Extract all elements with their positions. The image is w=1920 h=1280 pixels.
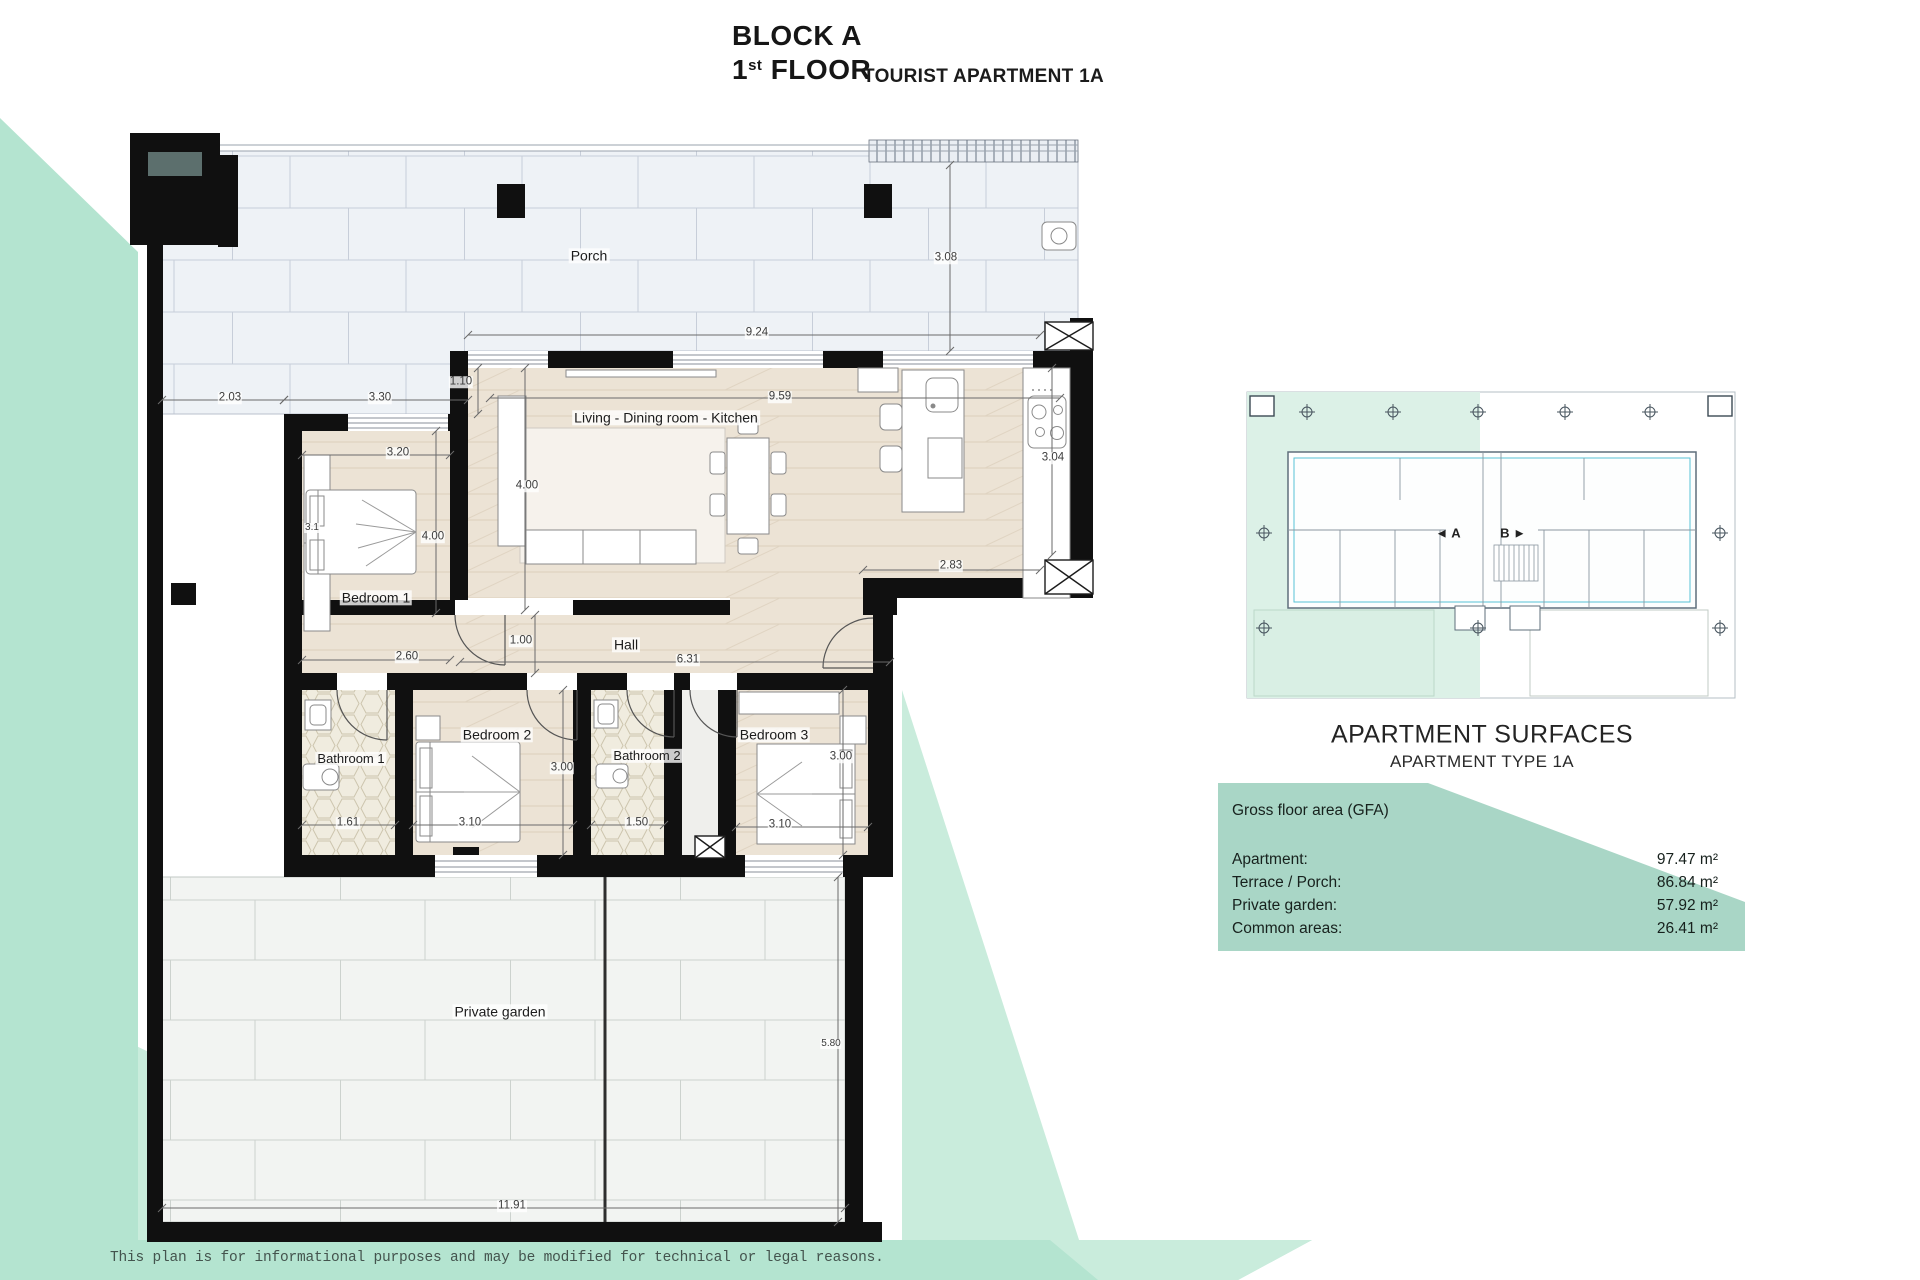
dim-label: 9.59	[768, 391, 792, 403]
dim-label: 3.00	[829, 751, 853, 763]
title-floor: 1st FLOOR	[732, 54, 871, 86]
key-plan-unit-b-label: B ►	[1500, 526, 1526, 541]
garden-right-wall	[845, 877, 863, 1222]
left-plot-wall	[147, 235, 163, 1242]
dim-label: 3.1	[304, 523, 320, 533]
bottom-plot-wall	[147, 1222, 882, 1242]
pillar	[171, 583, 196, 605]
floor-number: 1	[732, 54, 748, 85]
floor-ordinal: st	[748, 57, 762, 74]
surfaces-heading: APARTMENT SURFACES	[1331, 721, 1633, 750]
room-label-garden: Private garden	[452, 1004, 547, 1019]
porch-column	[864, 184, 892, 218]
bed-double	[306, 490, 416, 574]
chair	[771, 494, 786, 516]
toilet	[596, 764, 628, 788]
key-plan-unit-a-label: ◄ A	[1435, 526, 1460, 541]
room-label-bathroom1: Bathroom 1	[315, 752, 386, 766]
sofa	[498, 396, 526, 546]
window-bedroom1	[348, 414, 448, 431]
shaft-box	[1045, 560, 1093, 594]
dim-label: 2.03	[218, 392, 242, 404]
dim-label: 3.20	[386, 447, 410, 459]
shaft-box	[695, 836, 725, 858]
dim-label: 4.00	[421, 531, 445, 543]
nightstand	[416, 716, 440, 740]
closet	[739, 692, 839, 714]
window-bedroom2	[435, 855, 537, 877]
nightstand	[840, 716, 866, 744]
title-apartment: TOURIST APARTMENT 1A	[863, 66, 1104, 88]
dim-label: 5.80	[820, 1039, 841, 1049]
floor-word: FLOOR	[762, 54, 871, 85]
dim-label: 1.00	[509, 635, 533, 647]
garden-floor	[162, 877, 845, 1222]
surface-row-value: 26.41 m²	[1528, 920, 1718, 938]
key-plan-stairs	[1494, 545, 1538, 581]
dim-label: 2.83	[939, 560, 963, 572]
dim-label: 1.10	[449, 376, 473, 388]
surface-row-label: Common areas:	[1232, 920, 1342, 938]
surface-row-value: 86.84 m²	[1528, 874, 1718, 892]
key-plan	[1247, 392, 1735, 698]
key-plan-corner	[1708, 396, 1732, 416]
entry-block-wall	[130, 133, 220, 245]
dining-table	[727, 438, 769, 534]
stool	[880, 446, 902, 472]
toilet	[303, 764, 339, 790]
room-label-bathroom2: Bathroom 2	[611, 749, 682, 763]
dim-label: 2.60	[395, 651, 419, 663]
chair	[710, 452, 725, 474]
key-plan-corner	[1250, 396, 1274, 416]
room-label-bedroom1: Bedroom 1	[340, 590, 412, 605]
chair	[710, 494, 725, 516]
room-label-living: Living - Dining room - Kitchen	[572, 410, 760, 425]
window-bedroom3	[745, 855, 843, 877]
dim-label: 3.04	[1041, 452, 1065, 464]
key-plan-garden-left	[1254, 610, 1434, 696]
window-living-2	[673, 351, 823, 368]
room-label-bedroom3: Bedroom 3	[738, 727, 810, 742]
island-block	[928, 438, 962, 478]
outdoor-unit	[1042, 222, 1076, 250]
surface-row-label: Apartment:	[1232, 851, 1308, 869]
dim-label: 11.91	[497, 1200, 527, 1212]
room-label-porch: Porch	[569, 248, 610, 263]
shaft-box	[1045, 322, 1093, 350]
stove	[1028, 396, 1066, 448]
stool	[880, 404, 902, 430]
chair	[738, 538, 758, 554]
dim-label: 1.50	[625, 817, 649, 829]
dim-label: 6.31	[676, 654, 700, 666]
floor-plan-canvas	[0, 0, 1920, 1280]
entry-planter	[148, 152, 202, 176]
surface-row-label: Private garden:	[1232, 897, 1337, 915]
surface-row-value: 97.47 m²	[1528, 851, 1718, 869]
title-block: BLOCK A	[732, 20, 862, 52]
dim-label: 9.24	[745, 327, 769, 339]
dim-label: 3.10	[458, 817, 482, 829]
dim-label: 3.30	[368, 392, 392, 404]
surface-row-value: 57.92 m²	[1528, 897, 1718, 915]
dim-label: 1.61	[336, 817, 360, 829]
surface-row-label: Terrace / Porch:	[1232, 874, 1341, 892]
room-label-hall: Hall	[612, 637, 640, 652]
nook-floor	[682, 690, 718, 855]
kitchen-cabinet	[858, 368, 898, 392]
disclaimer-text: This plan is for informational purposes …	[110, 1250, 884, 1266]
surfaces-subheading: APARTMENT TYPE 1A	[1390, 752, 1574, 772]
surfaces-gfa-label: Gross floor area (GFA)	[1232, 802, 1389, 820]
dim-label: 3.00	[550, 762, 574, 774]
media-unit	[566, 370, 716, 377]
kitchen-right-wall	[1070, 318, 1093, 598]
dim-label: 3.08	[934, 252, 958, 264]
chair	[771, 452, 786, 474]
plan-sheet: BLOCK A 1st FLOOR TOURIST APARTMENT 1A P…	[0, 0, 1920, 1280]
dim-label: 3.10	[768, 819, 792, 831]
sofa	[526, 530, 696, 564]
hall-floor	[302, 615, 873, 673]
room-label-bedroom2: Bedroom 2	[461, 727, 533, 742]
dim-label: 4.00	[515, 480, 539, 492]
window-kitchen	[883, 351, 1033, 368]
porch-column	[497, 184, 525, 218]
key-plan-garden-right	[1530, 610, 1708, 696]
